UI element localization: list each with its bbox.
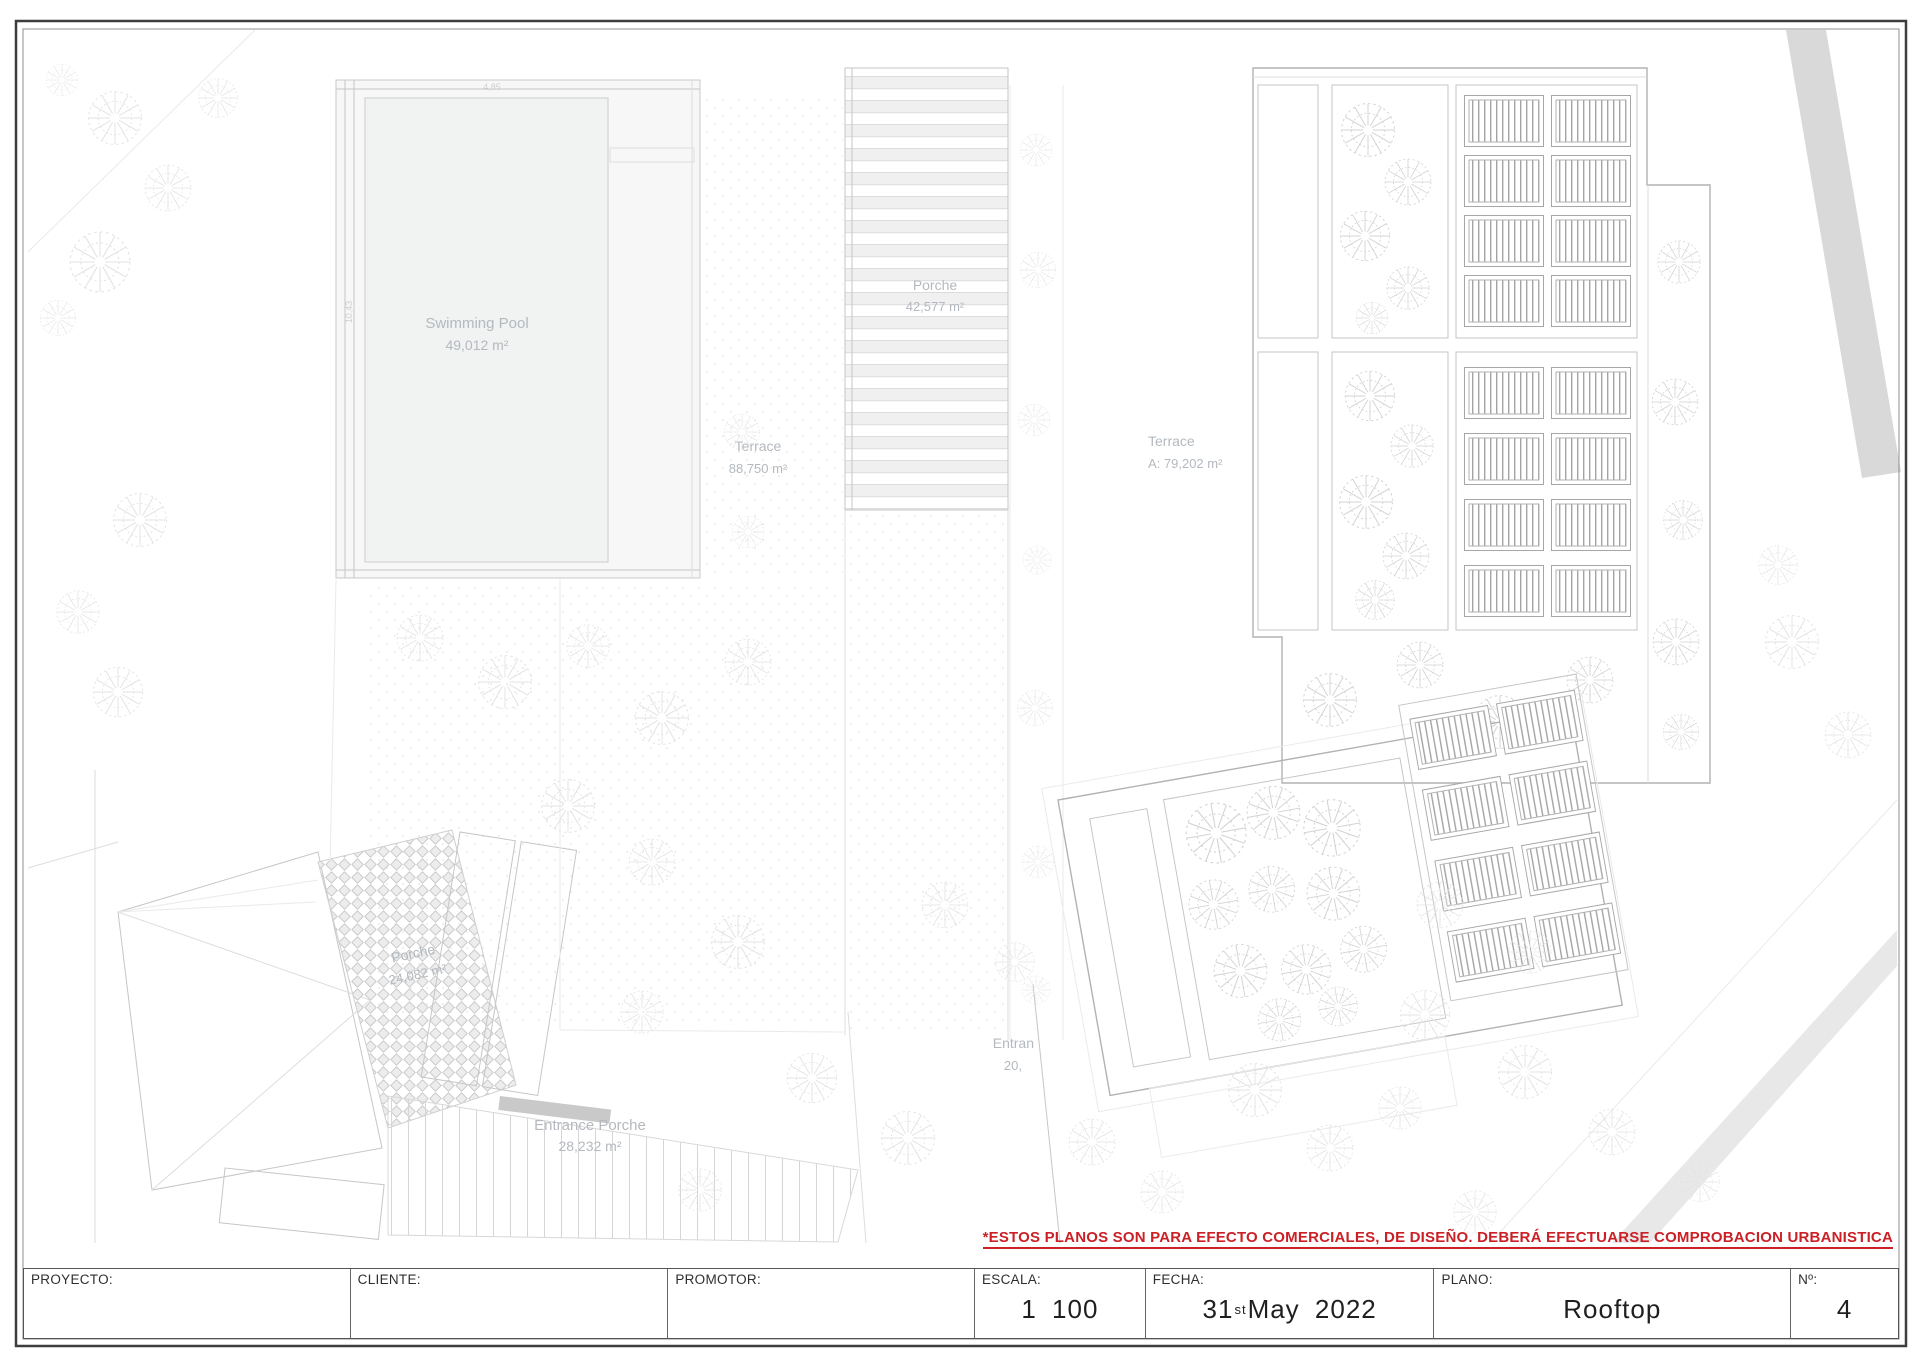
tree-icon xyxy=(1316,984,1361,1029)
tree-icon xyxy=(882,1112,935,1165)
entrance-partial-area: 20, xyxy=(1004,1058,1022,1073)
tree-icon xyxy=(1255,995,1304,1044)
tree-icon xyxy=(1304,674,1357,727)
solar-panel xyxy=(1534,903,1621,967)
rooftop-plan-drawing: 4,85 10,43 Swimming Pool 49,012 m² Porch… xyxy=(0,0,1920,1358)
pool-dim-height: 10,43 xyxy=(344,301,354,324)
tree-icon xyxy=(1337,923,1390,976)
tree-icon xyxy=(1023,546,1051,574)
fecha-rest: May 2022 xyxy=(1248,1294,1377,1325)
solar-panel xyxy=(1410,705,1497,769)
tree-icon xyxy=(1020,252,1055,287)
tree-icon xyxy=(1658,241,1700,283)
solar-panel xyxy=(1552,276,1631,327)
titleblock-cell-proyecto: PROYECTO: xyxy=(24,1269,351,1338)
tree-icon xyxy=(1766,616,1819,669)
title-block: PROYECTO: CLIENTE: PROMOTOR: ESCALA: 1 1… xyxy=(23,1268,1899,1339)
solar-panel xyxy=(1552,500,1631,551)
solar-panel xyxy=(1465,216,1544,267)
swimming-pool: 4,85 10,43 Swimming Pool 49,012 m² xyxy=(336,80,700,578)
tree-icon xyxy=(1383,533,1429,579)
road-bottom-right xyxy=(1612,930,1897,1243)
wing-trees xyxy=(1171,772,1400,1053)
solar-panels-cluster-2 xyxy=(1465,368,1631,617)
planter-trees-1 xyxy=(1340,104,1431,334)
tree-icon xyxy=(1017,690,1052,725)
tree-icon xyxy=(1454,1191,1496,1233)
tree-icon xyxy=(1356,302,1388,334)
entrance-porche-area: 28,232 m² xyxy=(558,1138,621,1154)
tree-icon xyxy=(1210,940,1271,1001)
tree-icon xyxy=(1342,104,1395,157)
solar-panel xyxy=(1552,156,1631,207)
tree-icon xyxy=(1499,1046,1552,1099)
solar-panel xyxy=(1552,434,1631,485)
tree-icon xyxy=(1141,1171,1183,1213)
disclaimer-note: *ESTOS PLANOS SON PARA EFECTO COMERCIALE… xyxy=(983,1229,1893,1249)
solar-panel xyxy=(1552,96,1631,147)
promotor-value xyxy=(668,1281,974,1338)
solar-panel xyxy=(1521,832,1608,896)
tree-icon xyxy=(199,79,238,118)
roof-building-north xyxy=(1253,68,1710,783)
tree-icon xyxy=(1069,1119,1115,1165)
tree-icon xyxy=(1229,1064,1282,1117)
solar-panel xyxy=(1465,500,1544,551)
tree-icon xyxy=(1759,546,1798,585)
titleblock-cell-cliente: CLIENTE: xyxy=(351,1269,669,1338)
solar-panel xyxy=(1465,276,1544,327)
solar-panel xyxy=(1465,368,1544,419)
tree-icon xyxy=(1340,211,1389,260)
tree-icon xyxy=(1185,876,1242,933)
tree-icon xyxy=(1652,379,1698,425)
terrace-right-label: Terrace xyxy=(1148,433,1195,449)
titleblock-cell-fecha: FECHA: 31st May 2022 xyxy=(1146,1269,1435,1338)
proyecto-value xyxy=(24,1281,350,1338)
swimming-pool-label: Swimming Pool xyxy=(425,315,528,332)
tree-icon xyxy=(1391,425,1433,467)
tree-icon xyxy=(1278,941,1335,998)
tree-icon xyxy=(57,591,99,633)
solar-panel xyxy=(1465,96,1544,147)
titleblock-cell-numero: Nº: 4 xyxy=(1791,1269,1898,1338)
tree-icon xyxy=(1664,501,1703,540)
tree-icon xyxy=(1022,976,1050,1004)
tree-icon xyxy=(1181,798,1250,867)
lower-stairs xyxy=(219,1168,384,1239)
titleblock-cell-plano: PLANO: Rooftop xyxy=(1434,1269,1791,1338)
tree-icon xyxy=(1022,846,1054,878)
solar-panel xyxy=(1422,776,1509,840)
solar-panel xyxy=(1509,761,1596,825)
swimming-pool-area: 49,012 m² xyxy=(445,337,508,353)
tree-icon xyxy=(1379,1087,1421,1129)
pool-dim-width: 4,85 xyxy=(483,82,501,92)
tree-icon xyxy=(1245,863,1298,916)
plano-value: Rooftop xyxy=(1434,1281,1790,1338)
tree-icon xyxy=(93,667,142,716)
tree-icon xyxy=(40,300,75,335)
road-top-right xyxy=(1786,30,1901,478)
solar-panel xyxy=(1552,216,1631,267)
entrance-partial-label: Entran xyxy=(993,1035,1034,1051)
solar-panel xyxy=(1465,156,1544,207)
escala-value: 1 100 xyxy=(975,1281,1145,1338)
entrance-porche-label: Entrance Porche xyxy=(534,1117,646,1134)
tree-icon xyxy=(114,494,167,547)
tree-icon xyxy=(1397,642,1443,688)
titleblock-cell-promotor: PROMOTOR: xyxy=(668,1269,975,1338)
terrace-center-area: 88,750 m² xyxy=(729,461,788,476)
tree-icon xyxy=(1345,371,1394,420)
porche-top-area: 42,577 m² xyxy=(906,299,965,314)
fecha-value: 31st May 2022 xyxy=(1146,1281,1434,1338)
roof-wing-rotated xyxy=(1038,674,1648,1167)
numero-value: 4 xyxy=(1791,1281,1898,1338)
tree-icon xyxy=(1385,159,1431,205)
tree-icon xyxy=(1387,267,1429,309)
tree-icon xyxy=(1340,476,1393,529)
tree-icon xyxy=(70,232,130,292)
solar-panels-cluster-1 xyxy=(1465,96,1631,327)
fecha-ordinal: st xyxy=(1234,1302,1246,1317)
tree-icon xyxy=(1299,795,1364,860)
terrace-right-area: A: 79,202 m² xyxy=(1148,456,1223,471)
tree-icon xyxy=(787,1053,836,1102)
solar-panel xyxy=(1447,918,1534,982)
tree-icon xyxy=(1243,782,1304,843)
tree-icon xyxy=(1356,581,1395,620)
tree-icon xyxy=(1663,714,1698,749)
tree-icon xyxy=(1589,1109,1635,1155)
titleblock-cell-escala: ESCALA: 1 100 xyxy=(975,1269,1146,1338)
tree-icon xyxy=(145,165,191,211)
cliente-value xyxy=(351,1281,668,1338)
tree-icon xyxy=(1653,619,1699,665)
solar-panel xyxy=(1465,434,1544,485)
tree-icon xyxy=(1307,1125,1353,1171)
planter-trees-2 xyxy=(1340,371,1434,619)
tree-icon xyxy=(46,64,78,96)
tree-icon xyxy=(89,92,142,145)
tree-icon xyxy=(1303,863,1364,924)
solar-panel xyxy=(1496,690,1583,754)
solar-panel xyxy=(1465,566,1544,617)
porche-top-label: Porche xyxy=(913,277,958,293)
tree-icon xyxy=(1825,712,1871,758)
tree-icon xyxy=(1018,404,1050,436)
fecha-day: 31 xyxy=(1203,1294,1234,1325)
tree-icon xyxy=(1020,134,1052,166)
solar-panel xyxy=(1435,847,1522,911)
drawing-sheet: 4,85 10,43 Swimming Pool 49,012 m² Porch… xyxy=(0,0,1920,1358)
solar-panel xyxy=(1552,566,1631,617)
solar-panel xyxy=(1552,368,1631,419)
